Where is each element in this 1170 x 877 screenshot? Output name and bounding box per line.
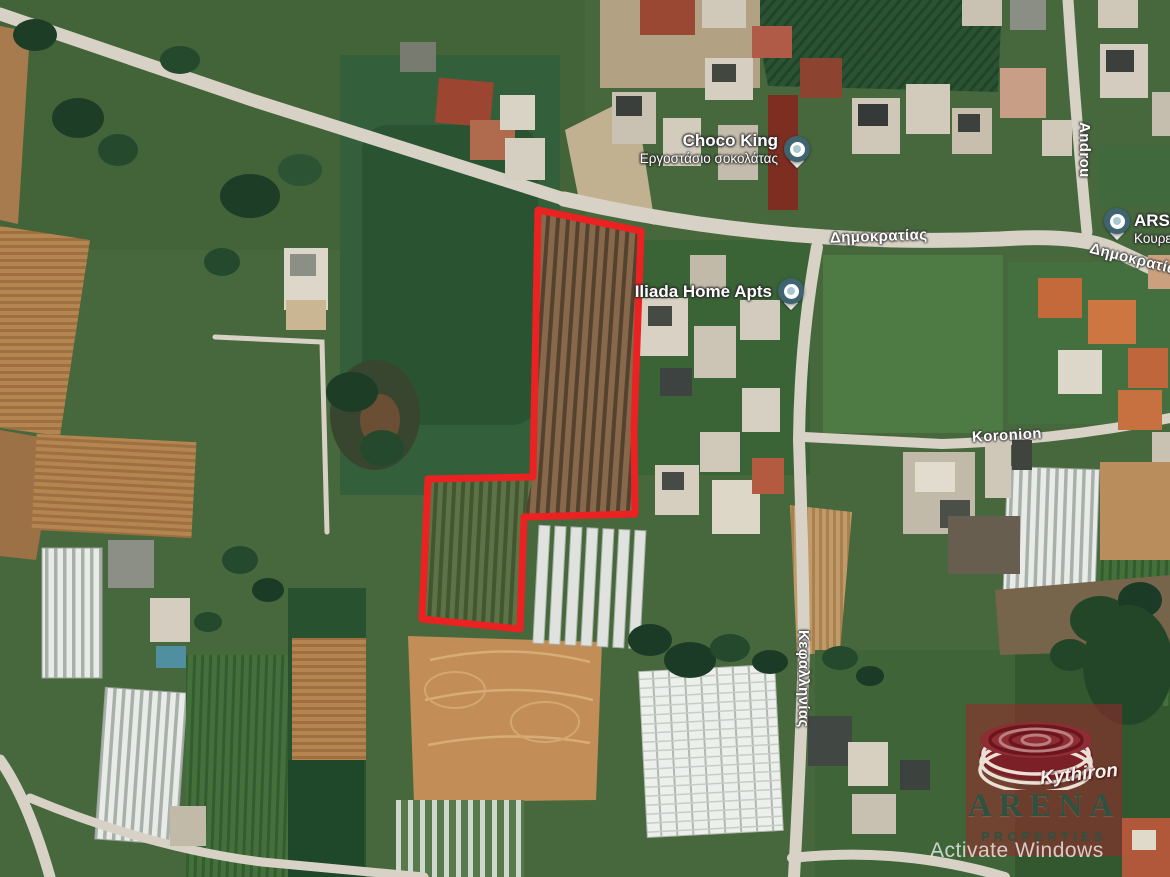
poi-title: Choco King [590, 130, 778, 151]
poi-subtitle: Κουρεία [1134, 231, 1170, 248]
arsm-pin[interactable] [1104, 208, 1130, 242]
road-label-dimokratias: Δημοκρατίας [830, 226, 928, 246]
poi-label-choco-king[interactable]: Choco King Εργοστάσιο σοκολάτας [590, 130, 778, 168]
road-label-kefallinias: Κεφαλληνίας [795, 630, 812, 728]
poi-title: ARSM [1134, 210, 1170, 231]
choco-king-pin[interactable] [784, 136, 810, 170]
poi-pin-icon [1104, 208, 1130, 234]
agency-name: ARENA [966, 788, 1122, 825]
poi-subtitle: Εργοστάσιο σοκολάτας [590, 151, 778, 168]
poi-label-iliada-home-apts[interactable]: Iliada Home Apts [600, 281, 772, 302]
poi-pin-icon [784, 136, 810, 162]
listing-map-screenshot: Choco King Εργοστάσιο σοκολάτας Iliada H… [0, 0, 1170, 877]
road-label-androu: Androu [1076, 122, 1093, 178]
activate-windows-watermark: Activate Windows [930, 839, 1104, 863]
poi-title: Iliada Home Apts [600, 281, 772, 302]
poi-label-arsm[interactable]: ARSM Κουρεία [1134, 210, 1170, 248]
poi-pin-icon [778, 278, 804, 304]
iliada-home-apts-pin[interactable] [778, 278, 804, 312]
agency-watermark: Kythiron ARENA PROPERTIES [966, 704, 1122, 856]
